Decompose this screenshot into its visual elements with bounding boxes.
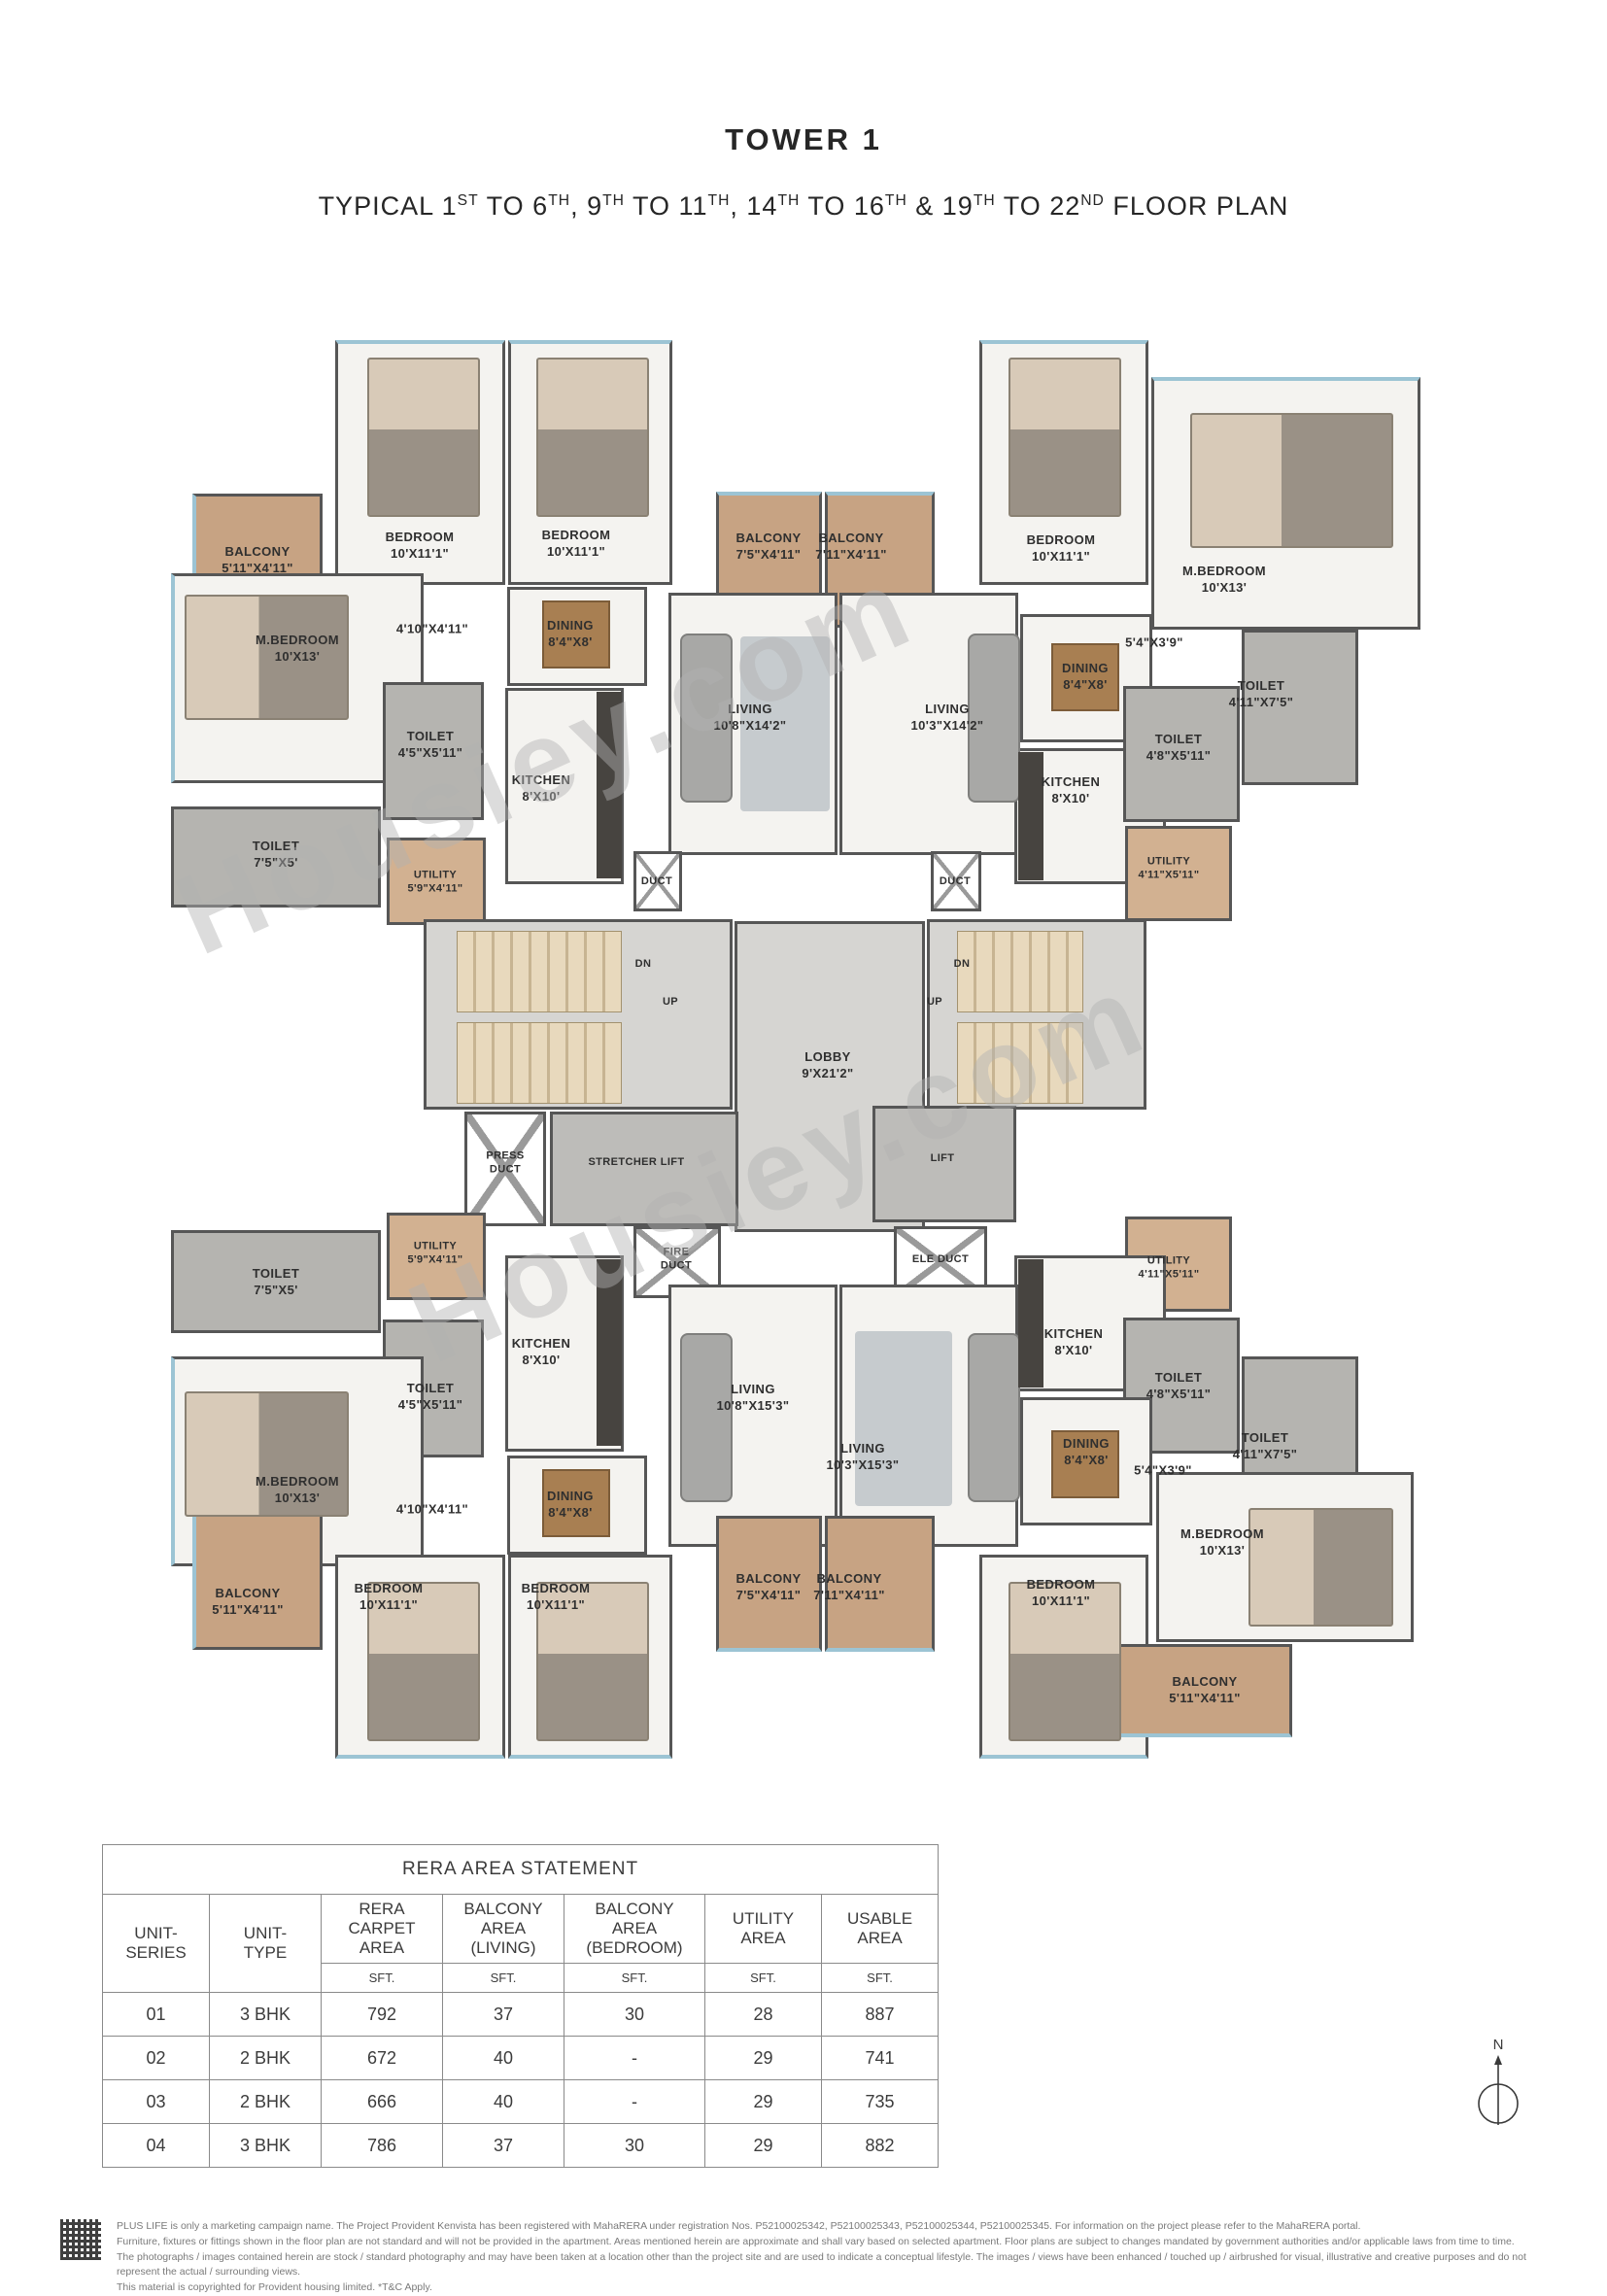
room-label: UTILITY4'11"X5'11"	[1139, 1254, 1200, 1283]
room-label: M.BEDROOM10'X13'	[256, 633, 339, 666]
room-label: KITCHEN8'X10'	[1044, 1326, 1104, 1359]
compass-icon	[1475, 2053, 1522, 2129]
table-cell: -	[564, 2080, 705, 2124]
room-label: UTILITY4'11"X5'11"	[1139, 855, 1200, 883]
bed-furniture	[1248, 1508, 1393, 1627]
balcony-bottom-left	[192, 1512, 323, 1650]
room-label: BALCONY5'11"X4'11"	[212, 1586, 284, 1619]
table-cell: 02	[103, 2037, 210, 2080]
table-cell: 30	[564, 2124, 705, 2168]
passage-label: 5'4"X3'9"	[1134, 1463, 1192, 1480]
qr-code	[60, 2219, 101, 2260]
duct-label: PRESS DUCT	[471, 1149, 539, 1178]
room-label: M.BEDROOM10'X13'	[256, 1474, 339, 1507]
lift-label: STRETCHER LIFT	[583, 1155, 690, 1169]
room-label: DINING8'4"X8'	[547, 1489, 594, 1522]
room-label: BEDROOM10'X11'1"	[542, 528, 611, 561]
floor-plan-page: { "header": { "title": "TOWER 1", "subti…	[0, 0, 1607, 2273]
room-label: DINING8'4"X8'	[547, 618, 594, 651]
unit-label: SFT.	[322, 1964, 443, 1993]
table-cell: 741	[822, 2037, 939, 2080]
room-label: BALCONY5'11"X4'11"	[1169, 1674, 1241, 1707]
table-cell: 735	[822, 2080, 939, 2124]
table-cell: 37	[443, 2124, 564, 2168]
room-label: LIVING10'8"X15'3"	[717, 1382, 790, 1415]
disclaimer-line: The photographs / images contained herei…	[117, 2250, 1545, 2281]
room-label: TOILET7'5"X5'	[253, 1266, 299, 1299]
table-cell: 887	[822, 1993, 939, 2037]
table-cell: 01	[103, 1993, 210, 2037]
sofa-furniture	[680, 1333, 733, 1502]
room-label: TOILET4'11"X7'5"	[1233, 1430, 1298, 1463]
table-cell: 3 BHK	[210, 1993, 322, 2037]
room-label: LIVING10'3"X14'2"	[911, 702, 984, 735]
stair-label: UP	[663, 995, 678, 1009]
stair-treads	[457, 1022, 622, 1104]
room-label: TOILET4'5"X5'11"	[398, 729, 463, 762]
table-cell: 672	[322, 2037, 443, 2080]
col-header-unit-series: UNIT- SERIES	[103, 1895, 210, 1993]
table-cell: 792	[322, 1993, 443, 2037]
room-label: TOILET7'5"X5'	[253, 839, 299, 872]
lift-label: LIFT	[931, 1151, 955, 1165]
passage-label: 5'4"X3'9"	[1125, 635, 1183, 652]
sofa-furniture	[968, 1333, 1020, 1502]
col-header-usable-area: USABLE AREA	[822, 1895, 939, 1964]
duct-label: DUCT	[940, 874, 971, 888]
room-label: BALCONY7'11"X4'11"	[813, 1571, 885, 1604]
room-label: UTILITY5'9"X4'11"	[408, 869, 463, 897]
duct-label: FIRE DUCT	[647, 1246, 705, 1274]
kitchen-counter	[597, 1259, 622, 1446]
room-label: DINING8'4"X8'	[1062, 661, 1109, 694]
bed-furniture	[536, 358, 649, 517]
room-label: LIVING10'8"X14'2"	[714, 702, 787, 735]
kitchen-counter	[1018, 752, 1043, 880]
room-label: M.BEDROOM10'X13'	[1180, 1526, 1264, 1559]
bed-furniture	[367, 358, 480, 517]
stair-label: UP	[927, 995, 942, 1009]
room-label: BALCONY7'5"X4'11"	[735, 531, 801, 564]
table-cell: 3 BHK	[210, 2124, 322, 2168]
stair-treads	[957, 1022, 1083, 1104]
room-label: BALCONY7'11"X4'11"	[815, 531, 887, 564]
kitchen-counter	[597, 692, 622, 878]
table-cell: 30	[564, 1993, 705, 2037]
table-title: RERA AREA STATEMENT	[103, 1845, 939, 1895]
room-label: LIVING10'3"X15'3"	[827, 1441, 900, 1474]
col-header-utility-area: UTILITY AREA	[705, 1895, 822, 1964]
table-cell: 2 BHK	[210, 2080, 322, 2124]
table-cell: 29	[705, 2037, 822, 2080]
room-label: BEDROOM10'X11'1"	[1027, 532, 1096, 565]
table-cell: 2 BHK	[210, 2037, 322, 2080]
table-row: 032 BHK66640-29735	[103, 2080, 939, 2124]
kitchen-counter	[1018, 1259, 1043, 1388]
rera-area-table: RERA AREA STATEMENT UNIT- SERIES UNIT- T…	[102, 1844, 939, 2168]
north-label: N	[1471, 2037, 1525, 2053]
room-label: BEDROOM10'X11'1"	[522, 1581, 591, 1614]
table-cell: -	[564, 2037, 705, 2080]
room-label: KITCHEN8'X10'	[512, 1336, 571, 1369]
table-cell: 29	[705, 2080, 822, 2124]
stair-treads	[457, 931, 622, 1012]
room-label: TOILET4'5"X5'11"	[398, 1381, 463, 1414]
room-label: KITCHEN8'X10'	[512, 772, 571, 805]
table-cell: 04	[103, 2124, 210, 2168]
col-header-rera-carpet-area: RERA CARPET AREA	[322, 1895, 443, 1964]
table-cell: 37	[443, 1993, 564, 2037]
stair-treads	[957, 931, 1083, 1012]
table-cell: 03	[103, 2080, 210, 2124]
room-label: TOILET4'8"X5'11"	[1146, 732, 1212, 765]
unit-label: SFT.	[822, 1964, 939, 1993]
col-header-balcony-living: BALCONY AREA (LIVING)	[443, 1895, 564, 1964]
table-cell: 666	[322, 2080, 443, 2124]
table-cell: 29	[705, 2124, 822, 2168]
passage-label: 4'10"X4'11"	[396, 1502, 468, 1519]
page-subtitle: TYPICAL 1ST TO 6TH, 9TH TO 11TH, 14TH TO…	[0, 191, 1607, 222]
disclaimer: PLUS LIFE is only a marketing campaign n…	[117, 2219, 1545, 2296]
table-cell: 40	[443, 2080, 564, 2124]
room-label: DINING8'4"X8'	[1063, 1436, 1110, 1469]
room-label: BEDROOM10'X11'1"	[1027, 1577, 1096, 1610]
room-label: UTILITY5'9"X4'11"	[408, 1240, 463, 1268]
room-label: KITCHEN8'X10'	[1042, 774, 1101, 807]
north-indicator: N	[1471, 2037, 1525, 2133]
table-cell: 786	[322, 2124, 443, 2168]
room-label: M.BEDROOM10'X13'	[1182, 564, 1266, 597]
stair-label: DN	[954, 957, 971, 971]
room-label: BALCONY5'11"X4'11"	[222, 544, 293, 577]
col-header-balcony-bedroom: BALCONY AREA (BEDROOM)	[564, 1895, 705, 1964]
table-row: 043 BHK786373029882	[103, 2124, 939, 2168]
room-label: TOILET4'11"X7'5"	[1229, 678, 1294, 711]
unit-label: SFT.	[443, 1964, 564, 1993]
page-title: TOWER 1	[0, 122, 1607, 157]
room-label: BEDROOM10'X11'1"	[386, 530, 455, 563]
unit-label: SFT.	[564, 1964, 705, 1993]
col-header-unit-type: UNIT- TYPE	[210, 1895, 322, 1993]
rug-furniture	[855, 1331, 952, 1506]
unit-label: SFT.	[705, 1964, 822, 1993]
disclaimer-line: This material is copyrighted for Provide…	[117, 2280, 1545, 2296]
room-label: LOBBY9'X21'2"	[802, 1049, 853, 1082]
disclaimer-line: Furniture, fixtures or fittings shown in…	[117, 2235, 1545, 2250]
bed-furniture	[1190, 413, 1393, 548]
room-label: TOILET4'8"X5'11"	[1146, 1370, 1212, 1403]
passage-label: 4'10"X4'11"	[396, 622, 468, 638]
disclaimer-line: PLUS LIFE is only a marketing campaign n…	[117, 2219, 1545, 2235]
room-label: BEDROOM10'X11'1"	[355, 1581, 424, 1614]
table-row: 022 BHK67240-29741	[103, 2037, 939, 2080]
table-body: 013 BHK792373028887022 BHK67240-29741032…	[103, 1993, 939, 2168]
room-label: BALCONY7'5"X4'11"	[735, 1571, 801, 1604]
table-cell: 882	[822, 2124, 939, 2168]
table-cell: 40	[443, 2037, 564, 2080]
table-row: 013 BHK792373028887	[103, 1993, 939, 2037]
stair-label: DN	[635, 957, 652, 971]
bed-furniture	[1009, 358, 1121, 517]
duct-label: ELE DUCT	[911, 1252, 970, 1266]
duct-label: DUCT	[641, 874, 672, 888]
table-cell: 28	[705, 1993, 822, 2037]
